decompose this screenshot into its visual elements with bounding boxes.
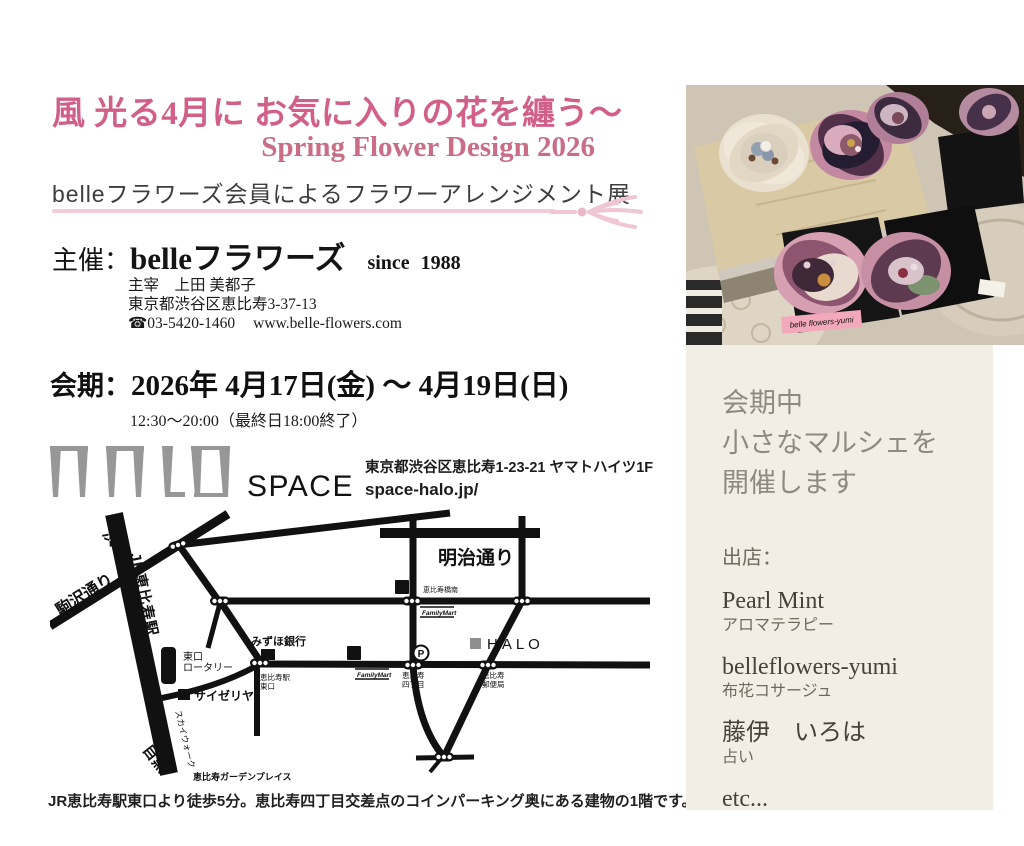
venue-website-link[interactable]: space-halo.jp/ [365,480,653,500]
vendor-category: アロマテラピー [722,616,973,636]
svg-text:P: P [418,649,425,660]
organizer-contact: ☎03-5420-1460www.belle-flowers.com [128,314,402,333]
map-label-mizuho-bank: みずほ銀行 [251,634,306,648]
map-label-yonchome-2: 四丁目 [402,680,425,689]
organizer-name: belleフラワーズ [130,233,345,278]
map-label-skywalk: スカイウォーク [173,709,197,769]
halo-logo-letters [50,446,230,497]
vendor-name: Pearl Mint [722,588,973,614]
marche-panel: 会期中 小さなマルシェを 開催します 出店： Pearl Mint アロマテラピ… [686,345,993,810]
svg-text:7: 7 [351,648,357,660]
station-building [160,646,177,685]
seven-eleven-icon: 7 [395,580,409,594]
vendor-name: etc... [722,786,973,812]
map-label-saizeriya: サイゼリヤ [194,688,254,703]
flyer-page: { "header": { "title_jp": "風 光る4月に お気に入り… [0,0,1024,846]
vendors-label: 出店： [722,541,973,570]
vendor-item: 藤伊 いろは 占い [722,720,973,768]
organizer-since: since 1988 [367,252,460,275]
corsage-photo: belle flowers-yumi [686,85,1024,345]
halo-space03-logo: SPACE 03 [50,446,360,502]
striped-cloth [686,280,722,345]
familymart-logo: FamilyMart [355,669,392,679]
parking-icon: P [414,646,429,661]
marche-heading-line3: 開催します [722,463,973,503]
map-label-east-exit: 東口 [183,650,203,663]
vendor-name: belleflowers-yumi [722,654,973,680]
map-label-ebisubashi-minami: 恵比寿橋南 [423,585,458,594]
map-label-rotary: ロータリー [183,662,233,674]
svg-text:7: 7 [399,582,405,594]
schedule-hours: 12:30〜20:00（最終日18:00終了） [130,407,367,431]
mizuho-marker [261,649,275,660]
access-caption: JR恵比寿駅東口より徒歩5分。恵比寿四丁目交差点のコインパーキング奥にある建物の… [48,790,697,811]
vendor-category: 占い [722,748,973,768]
vendor-item: belleflowers-yumi 布花コサージュ [722,654,973,702]
page-title-english: Spring Flower Design 2026 [52,131,595,164]
map-label-meiji-dori: 明治通り [438,546,514,569]
map-label-post-office-1: 恵比寿 [482,670,505,680]
map-label-halo: HALO [487,636,544,653]
map-label-yonchome-1: 恵比寿 [402,670,425,680]
vendor-item: Pearl Mint アロマテラピー [722,588,973,636]
pink-divider [52,209,555,213]
organizer-director: 主宰 上田 美都子 [128,276,402,295]
familymart-logo: FamilyMart [420,607,457,617]
venue-address: 東京都渋谷区恵比寿1-23-21 ヤマトハイツ1F [365,456,653,477]
svg-text:FamilyMart: FamilyMart [357,672,392,679]
organizer-address: 東京都渋谷区恵比寿3-37-13 [128,295,402,314]
svg-text:FamilyMart: FamilyMart [422,610,457,617]
leaf-ornament-icon [549,190,649,234]
map-label-post-office-2: 郵便局 [482,679,505,689]
marche-heading-line2: 小さなマルシェを [722,423,973,463]
vendor-name: 藤伊 いろは [722,720,973,746]
organizer-label: 主催： [52,240,130,277]
map-label-station-east-2: 東口 [260,681,275,691]
seven-eleven-icon: 7 [347,646,361,660]
marche-heading: 会期中 小さなマルシェを 開催します [722,383,973,503]
organizer-website-link[interactable]: www.belle-flowers.com [253,315,402,332]
schedule-label: 会期： [50,364,131,403]
organizer-line: 主催： belleフラワーズ since 1988 [52,233,461,278]
marche-heading-line1: 会期中 [722,383,973,423]
saizeriya-marker [178,689,190,700]
page-title: 風 光る4月に お気に入りの花を纏う〜 [52,86,623,134]
halo-venue-marker [470,638,481,649]
map-label-station-east-1: 恵比寿駅 [260,672,290,682]
organizer-phone: ☎03-5420-1460 [128,315,235,332]
vendor-item: etc... [722,786,973,812]
exhibition-subtitle: belleフラワーズ会員によるフラワーアレンジメント展 [52,175,631,209]
access-map: JR恵比寿駅 渋谷 駒沢通り 目黒 スカイウォーク 明治通り みずほ銀行 東口 … [50,508,650,800]
schedule-dates: 2026年 4月17日(金) 〜 4月19日(日) [131,362,568,404]
organizer-details: 主宰 上田 美都子 東京都渋谷区恵比寿3-37-13 ☎03-5420-1460… [128,276,402,333]
schedule-line: 会期： 2026年 4月17日(金) 〜 4月19日(日) [50,362,568,404]
map-label-garden-place: 恵比寿ガーデンプレイス [193,771,291,782]
vendor-category: 布花コサージュ [722,682,973,702]
venue-address-block: 東京都渋谷区恵比寿1-23-21 ヤマトハイツ1F space-halo.jp/ [365,456,653,500]
space03-label: SPACE 03 [247,470,360,502]
